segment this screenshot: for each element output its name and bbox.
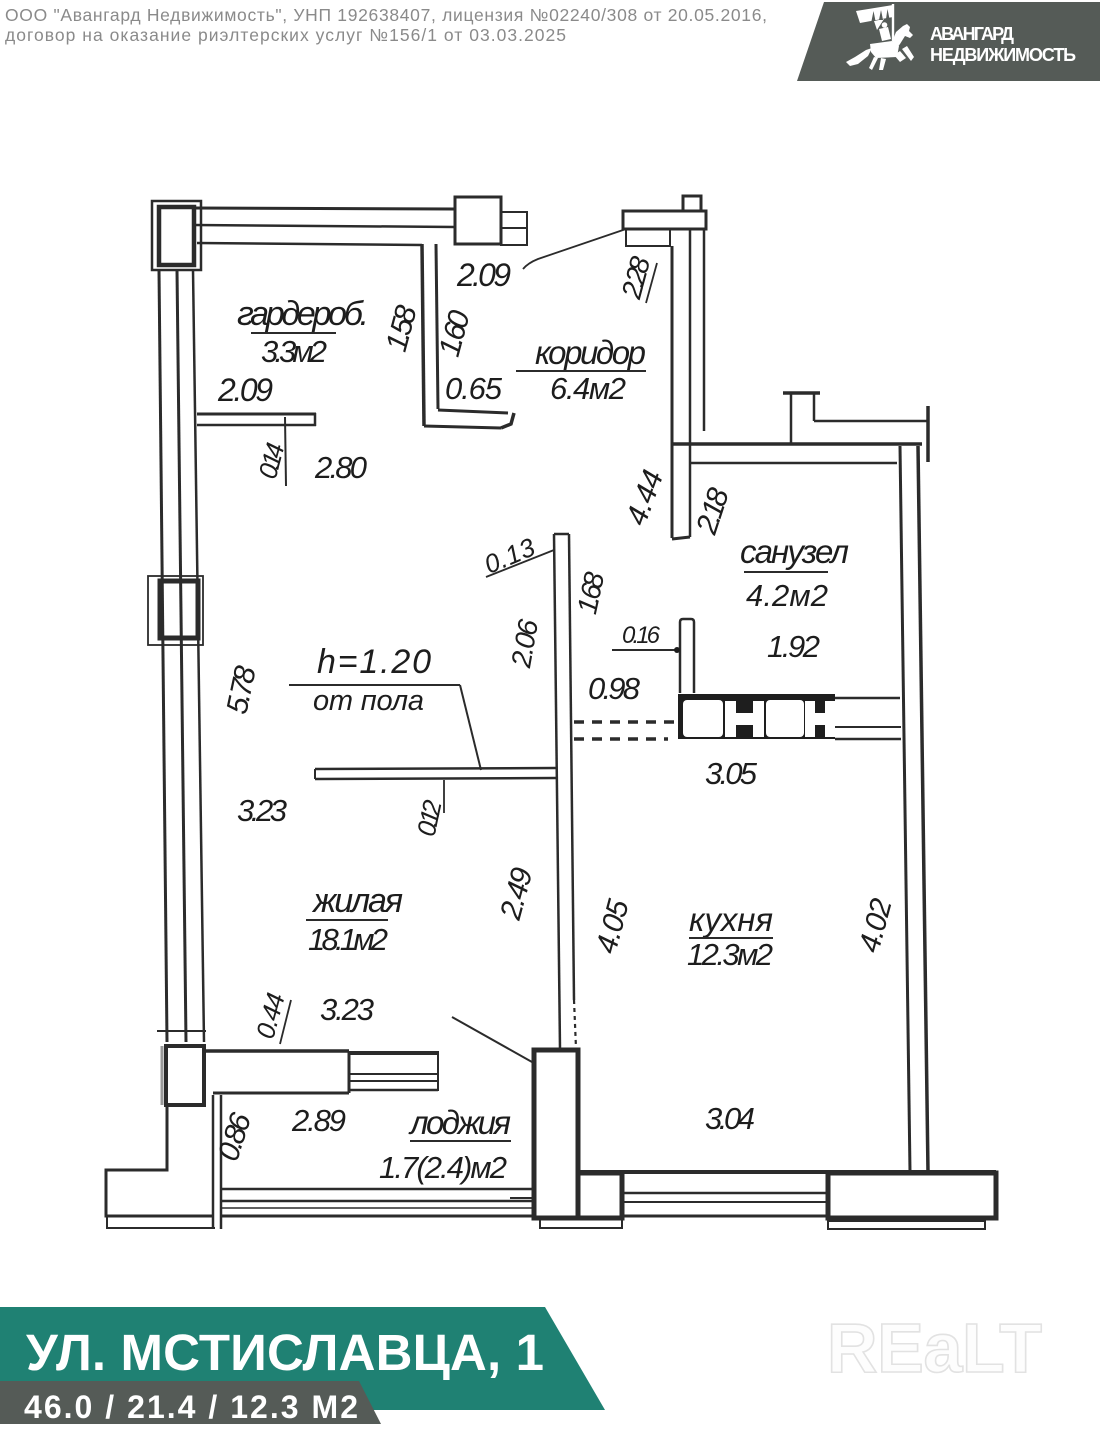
svg-text:санузел: санузел	[740, 533, 849, 570]
svg-text:0.16: 0.16	[622, 622, 661, 649]
svg-text:0.65: 0.65	[445, 371, 503, 406]
svg-text:1.92: 1.92	[767, 629, 820, 664]
svg-text:УЛ. МСТИСЛАВЦА, 1: УЛ. МСТИСЛАВЦА, 1	[26, 1324, 544, 1381]
svg-text:3.05: 3.05	[705, 756, 758, 791]
svg-text:2.09: 2.09	[217, 372, 273, 408]
svg-text:лоджия: лоджия	[408, 1104, 511, 1141]
svg-text:НЕДВИЖИМОСТЬ: НЕДВИЖИМОСТЬ	[930, 45, 1076, 65]
svg-text:от пола: от пола	[313, 685, 424, 717]
svg-text:1.7(2.4)м2: 1.7(2.4)м2	[379, 1150, 507, 1185]
svg-text:4.2м2: 4.2м2	[746, 578, 828, 613]
svg-text:ООО "Авангард Недвижимость", У: ООО "Авангард Недвижимость", УНП 1926384…	[5, 5, 767, 25]
svg-text:0.98: 0.98	[588, 671, 641, 706]
svg-text:12.3м2: 12.3м2	[687, 937, 773, 972]
svg-text:2.09: 2.09	[456, 257, 511, 293]
svg-text:жилая: жилая	[311, 882, 403, 920]
svg-text:АВАНГАРД: АВАНГАРД	[930, 24, 1014, 44]
svg-text:2.89: 2.89	[291, 1103, 346, 1138]
svg-text:6.4м2: 6.4м2	[550, 371, 626, 406]
svg-text:гардероб.: гардероб.	[237, 295, 369, 333]
svg-text:REaLT: REaLT	[827, 1309, 1044, 1387]
svg-text:3.04: 3.04	[705, 1101, 755, 1136]
svg-text:2.80: 2.80	[314, 450, 367, 485]
svg-text:3.23: 3.23	[320, 992, 374, 1027]
svg-text:коридор: коридор	[535, 334, 646, 371]
svg-text:договор на оказание риэлтерски: договор на оказание риэлтерских услуг №1…	[5, 25, 566, 45]
svg-text:3.3м2: 3.3м2	[261, 334, 327, 369]
svg-text:кухня: кухня	[689, 901, 773, 938]
svg-text:3.23: 3.23	[237, 793, 287, 828]
svg-text:18.1м2: 18.1м2	[308, 922, 388, 957]
svg-text:46.0 / 21.4 / 12.3 М2: 46.0 / 21.4 / 12.3 М2	[24, 1389, 358, 1425]
svg-text:h=1.20: h=1.20	[317, 643, 431, 681]
